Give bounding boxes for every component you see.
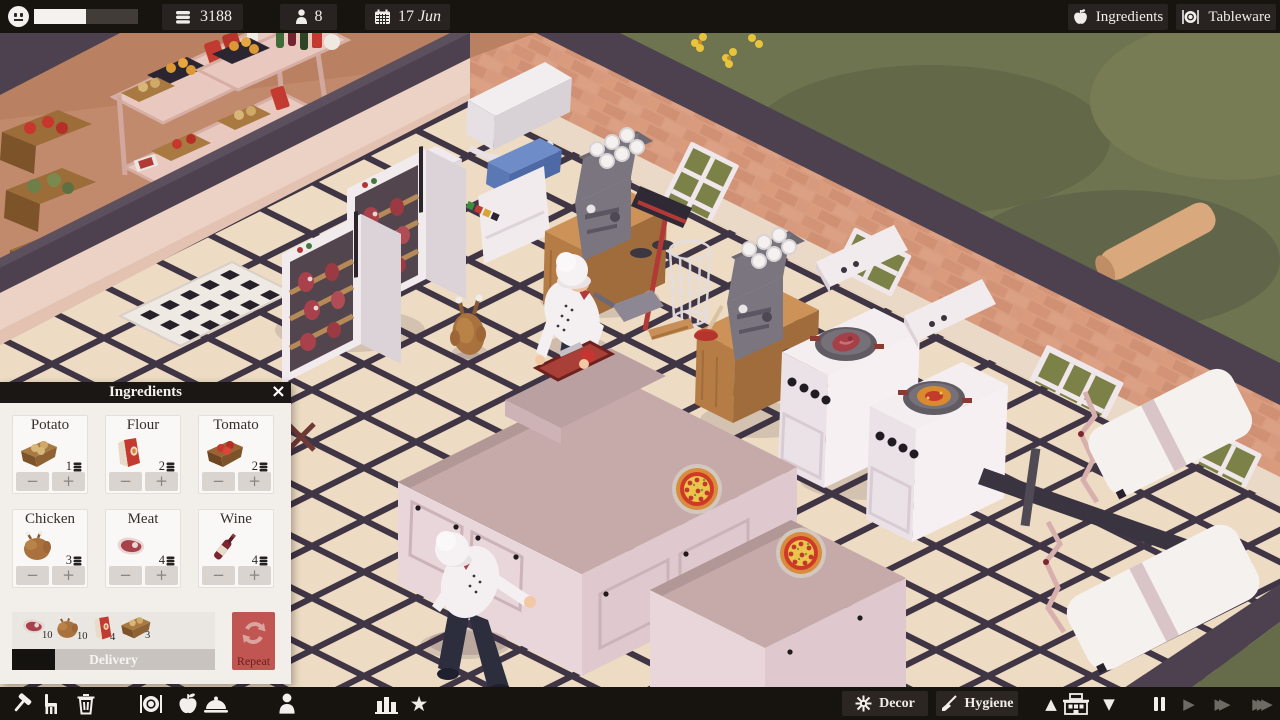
money-value: 3188 xyxy=(200,8,232,26)
ingredients-panel-header: Ingredients × xyxy=(0,382,291,403)
pause-button[interactable] xyxy=(1146,692,1172,716)
floor-down-button[interactable]: ▼ xyxy=(1096,692,1122,716)
game-window: 3188 8 17 Jun Ingredients Tableware xyxy=(0,0,1280,720)
decor-button[interactable]: Decor xyxy=(842,691,928,716)
build-hammer-icon[interactable] xyxy=(8,692,34,716)
quantity-stepper: −+ xyxy=(202,566,271,585)
delivery-label: Delivery xyxy=(12,649,215,670)
wine-bottle-icon xyxy=(203,531,245,565)
cart-item-meat: 10 xyxy=(18,614,50,645)
menu-cloche-icon[interactable] xyxy=(203,692,229,716)
minus-button[interactable]: − xyxy=(109,566,142,585)
sauce-in-pan xyxy=(917,386,951,406)
furniture-chair-icon[interactable] xyxy=(38,692,64,716)
pizza-2[interactable] xyxy=(776,528,826,578)
minus-button[interactable]: − xyxy=(16,566,49,585)
repeat-button-label: Repeat xyxy=(232,654,275,669)
ingredient-card-chicken: Chicken 3 −+ xyxy=(12,509,88,588)
hygiene-button-label: Hygiene xyxy=(965,696,1014,712)
cart-item-flour: 4 xyxy=(90,614,116,647)
delivery-progress-bar: Delivery xyxy=(12,649,215,670)
quantity-stepper: −+ xyxy=(16,566,85,585)
staff-value: 8 xyxy=(315,8,323,26)
repeat-delivery-button[interactable]: Repeat xyxy=(232,612,275,670)
steak-icon xyxy=(110,531,152,563)
stats-chart-icon[interactable] xyxy=(374,692,400,716)
tableware-button-label: Tableware xyxy=(1208,9,1270,26)
ingredient-card-wine: Wine 4 −+ xyxy=(198,509,274,588)
ingredient-name: Flour xyxy=(106,417,180,434)
cart-item-chicken: 10 xyxy=(52,614,84,647)
coin-icon xyxy=(73,462,82,472)
play-button[interactable]: ▶ xyxy=(1176,692,1202,716)
top-bar: 3188 8 17 Jun Ingredients Tableware xyxy=(0,0,1280,33)
ingredient-name: Chicken xyxy=(13,511,87,528)
ingredient-name: Meat xyxy=(106,511,180,528)
ingredient-card-flour: Flour 2 −+ xyxy=(105,415,181,494)
ingredient-card-potato: Potato 1 −+ xyxy=(12,415,88,494)
potato-crate-icon xyxy=(17,437,59,469)
plus-button[interactable]: + xyxy=(52,566,85,585)
ingredient-name: Tomato xyxy=(199,417,273,434)
staff-display[interactable]: 8 xyxy=(280,4,337,30)
coin-stack-icon xyxy=(173,10,193,25)
quantity-stepper: −+ xyxy=(109,566,178,585)
delivery-cart: 10 10 4 3 Delivery xyxy=(12,612,215,670)
sell-trash-icon[interactable] xyxy=(73,692,99,716)
reviews-star-icon[interactable]: ★ xyxy=(406,692,432,716)
chicken-icon xyxy=(17,531,59,563)
date-month: Jun xyxy=(418,8,441,26)
decor-ornament-icon xyxy=(855,695,872,712)
minus-button[interactable]: − xyxy=(202,566,235,585)
fastest-forward-button[interactable]: ▶▶▶ xyxy=(1238,692,1280,716)
decor-button-label: Decor xyxy=(879,696,915,712)
minus-button[interactable]: − xyxy=(16,472,49,491)
minus-button[interactable]: − xyxy=(202,472,235,491)
tomato-crate-icon xyxy=(203,437,245,469)
ingredient-name: Wine xyxy=(199,511,273,528)
fast-forward-button[interactable]: ▶▶ xyxy=(1202,692,1236,716)
ingredients-button-label: Ingredients xyxy=(1096,9,1163,26)
ingredients-apple-icon[interactable] xyxy=(175,692,201,716)
hygiene-button[interactable]: Hygiene xyxy=(936,691,1018,716)
plate-cutlery-icon xyxy=(1181,9,1200,25)
staff-person-icon[interactable] xyxy=(274,692,300,716)
money-display[interactable]: 3188 xyxy=(162,4,243,30)
plus-button[interactable]: + xyxy=(238,566,271,585)
plus-button[interactable]: + xyxy=(145,566,178,585)
date-display[interactable]: 17 Jun xyxy=(365,4,450,30)
plus-button[interactable]: + xyxy=(238,472,271,491)
quantity-stepper: −+ xyxy=(202,472,271,491)
mood-smiley-icon[interactable] xyxy=(8,6,29,27)
plus-button[interactable]: + xyxy=(145,472,178,491)
tableware-button[interactable]: Tableware xyxy=(1176,4,1276,30)
ingredients-panel: Ingredients × Potato 1 −+ Flour 2 −+ Tom… xyxy=(0,382,291,684)
cart-item-potato: 3 xyxy=(118,614,152,645)
date-day: 17 xyxy=(398,8,414,26)
calendar-icon xyxy=(374,9,391,25)
pizza-1[interactable] xyxy=(672,464,722,514)
quantity-stepper: −+ xyxy=(109,472,178,491)
ingredient-card-tomato: Tomato 2 −+ xyxy=(198,415,274,494)
hygiene-broom-icon xyxy=(941,695,958,712)
ingredients-panel-title: Ingredients xyxy=(109,384,182,401)
building-icon xyxy=(1060,692,1092,716)
flour-bag-icon xyxy=(110,437,152,469)
quantity-stepper: −+ xyxy=(16,472,85,491)
tableware-plate-icon[interactable] xyxy=(138,692,164,716)
plus-button[interactable]: + xyxy=(52,472,85,491)
close-icon[interactable]: × xyxy=(271,381,286,403)
ingredient-name: Potato xyxy=(13,417,87,434)
mood-progress-bar xyxy=(34,9,138,24)
ingredients-button[interactable]: Ingredients xyxy=(1068,4,1168,30)
apple-icon xyxy=(1073,9,1088,25)
ingredient-card-meat: Meat 4 −+ xyxy=(105,509,181,588)
minus-button[interactable]: − xyxy=(109,472,142,491)
person-icon xyxy=(295,9,308,25)
repeat-icon xyxy=(241,619,267,647)
bottom-toolbar: ★ Decor Hygiene ▲ ▼ ▶ ▶▶ xyxy=(0,687,1280,720)
mood-progress-fill xyxy=(34,9,86,24)
